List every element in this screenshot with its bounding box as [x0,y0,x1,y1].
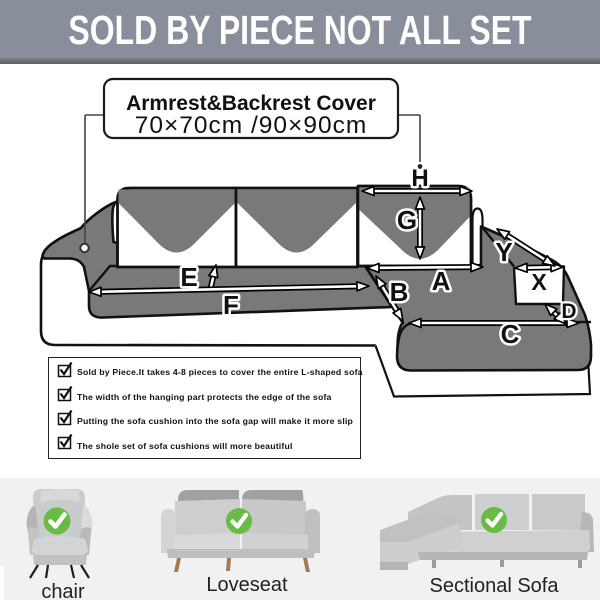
svg-text:Y: Y [495,237,512,267]
svg-text:B: B [390,277,409,307]
svg-text:E: E [180,262,197,292]
svg-text:H: H [411,165,428,192]
svg-text:X: X [531,269,547,295]
svg-text:D: D [561,300,576,323]
svg-text:70×70cm /90×90cm: 70×70cm /90×90cm [135,112,368,139]
svg-text:C: C [501,319,520,349]
svg-text:F: F [223,290,239,320]
svg-text:G: G [397,205,417,235]
svg-text:A: A [432,266,451,296]
